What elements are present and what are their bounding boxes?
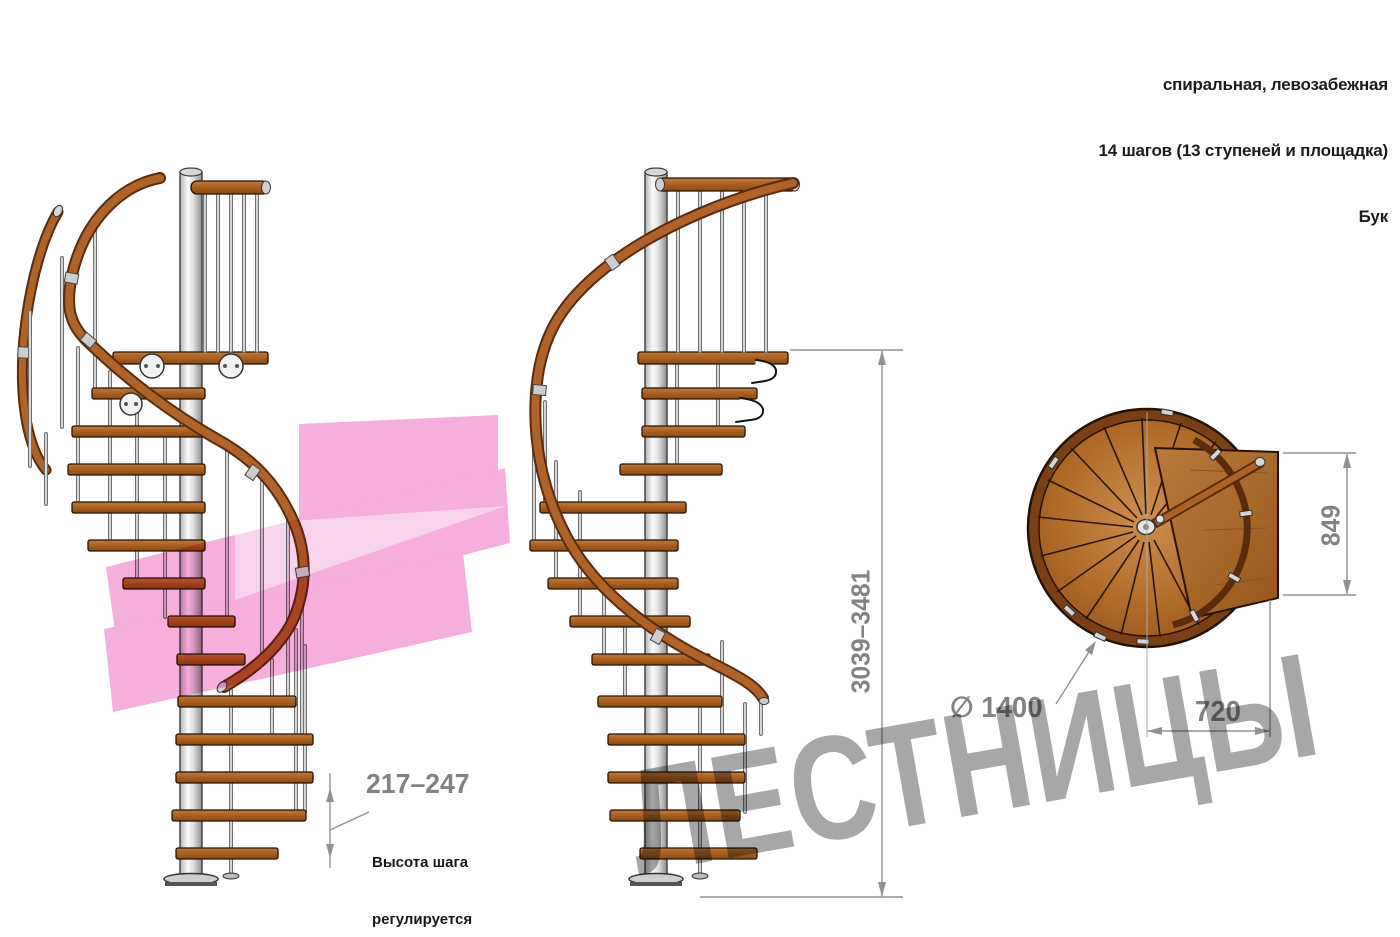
drawing-canvas: спиральная, левозабежная 14 шагов (13 ст… (0, 0, 1400, 937)
dimension-step-height: 217–247 (366, 768, 470, 800)
title-line-type: спиральная, левозабежная (1099, 74, 1388, 96)
platform-railing (191, 181, 271, 351)
step-height-note: Высота шага регулируется композитными пр… (372, 815, 484, 937)
title-line-steps: 14 шагов (13 ступеней и площадка) (1099, 140, 1388, 162)
dimension-landing-length: 849 (1316, 488, 1347, 564)
watermark-line1: ЛЕСТНИЦЫ (611, 592, 1358, 932)
handrail-back (18, 204, 65, 470)
